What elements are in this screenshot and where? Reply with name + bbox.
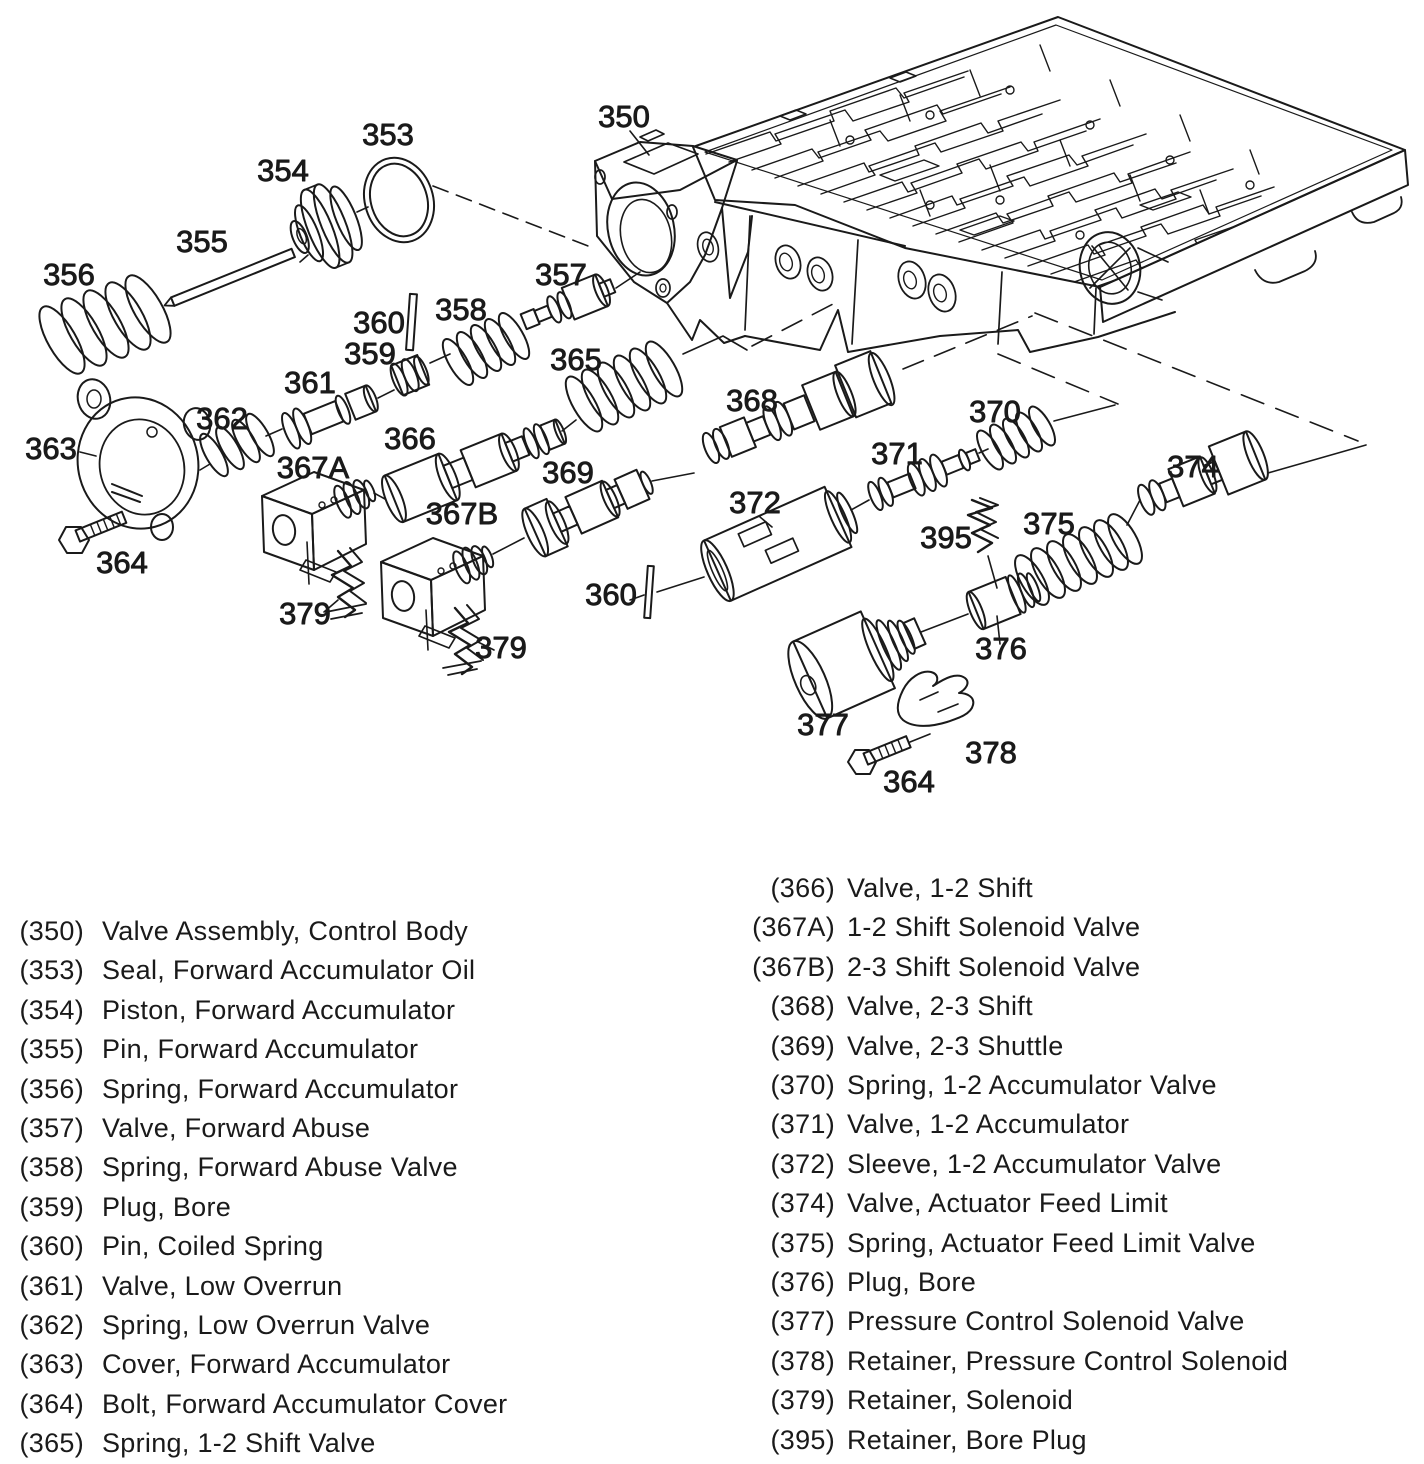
part-name: Valve Assembly, Control Body — [102, 912, 468, 951]
part-name: Valve, Low Overrun — [102, 1267, 343, 1306]
parts-list-row: (368)Valve, 2-3 Shift — [740, 987, 1380, 1026]
callout-359: 359 — [344, 336, 396, 371]
parts-list-row: (355)Pin, Forward Accumulator — [10, 1030, 610, 1069]
part-name: Valve, 1-2 Shift — [847, 869, 1033, 908]
part-354-piston — [278, 176, 372, 279]
part-number: (366) — [740, 869, 835, 908]
callout-365: 365 — [550, 342, 602, 377]
part-name: Valve, Actuator Feed Limit — [847, 1184, 1168, 1223]
channel-maze — [706, 45, 1336, 286]
callout-364b: 364 — [883, 764, 935, 799]
part-number: (362) — [10, 1306, 84, 1345]
parts-list-row: (361)Valve, Low Overrun — [10, 1267, 610, 1306]
callout-360b: 360 — [585, 577, 637, 612]
part-name: Pin, Coiled Spring — [102, 1227, 324, 1266]
callout-375: 375 — [1023, 506, 1075, 541]
part-name: Pressure Control Solenoid Valve — [847, 1302, 1245, 1341]
part-name: Retainer, Pressure Control Solenoid — [847, 1342, 1288, 1381]
parts-list-row: (367B)2-3 Shift Solenoid Valve — [740, 948, 1380, 987]
callout-395: 395 — [920, 520, 972, 555]
part-number: (367B) — [740, 948, 835, 987]
parts-list-row: (374)Valve, Actuator Feed Limit — [740, 1184, 1380, 1223]
part-number: (374) — [740, 1184, 835, 1223]
parts-list-row: (367A)1-2 Shift Solenoid Valve — [740, 908, 1380, 947]
part-number: (377) — [740, 1302, 835, 1341]
callout-356: 356 — [43, 257, 95, 292]
parts-list-row: (364)Bolt, Forward Accumulator Cover — [10, 1385, 610, 1424]
part-number: (372) — [740, 1145, 835, 1184]
part-number: (375) — [740, 1224, 835, 1263]
part-name: Spring, 1-2 Shift Valve — [102, 1424, 376, 1463]
part-360-coiled-pin — [644, 566, 654, 618]
callout-370: 370 — [969, 394, 1021, 429]
parts-list-left-column: (350)Valve Assembly, Control Body (353)S… — [10, 912, 610, 1464]
callout-369: 369 — [542, 455, 594, 490]
exploded-parts-figure: 350 353 354 355 356 357 358 360 359 361 … — [0, 0, 1424, 830]
part-name: Plug, Bore — [102, 1188, 231, 1227]
parts-list-right-column: (366)Valve, 1-2 Shift (367A)1-2 Shift So… — [740, 869, 1380, 1460]
part-number: (378) — [740, 1342, 835, 1381]
part-name: Sleeve, 1-2 Accumulator Valve — [847, 1145, 1221, 1184]
callout-371: 371 — [871, 436, 923, 471]
part-name: 2-3 Shift Solenoid Valve — [847, 948, 1140, 987]
callout-361: 361 — [284, 365, 336, 400]
part-395-retainer-clip — [968, 498, 998, 552]
part-363-cover — [63, 376, 214, 543]
part-name: Seal, Forward Accumulator Oil — [102, 951, 475, 990]
part-name: Spring, 1-2 Accumulator Valve — [847, 1066, 1217, 1105]
parts-list-row: (371)Valve, 1-2 Accumulator — [740, 1105, 1380, 1144]
parts-list-row: (366)Valve, 1-2 Shift — [740, 869, 1380, 908]
callout-353: 353 — [362, 117, 414, 152]
parts-list-row: (350)Valve Assembly, Control Body — [10, 912, 610, 951]
part-number: (364) — [10, 1385, 84, 1424]
parts-list-row: (370)Spring, 1-2 Accumulator Valve — [740, 1066, 1380, 1105]
callout-367B: 367B — [426, 496, 498, 531]
part-number: (359) — [10, 1188, 84, 1227]
bore-boss — [1073, 227, 1168, 310]
callout-366: 366 — [384, 421, 436, 456]
part-name: Spring, Forward Abuse Valve — [102, 1148, 458, 1187]
parts-list-row: (365)Spring, 1-2 Shift Valve — [10, 1424, 610, 1463]
part-number: (358) — [10, 1148, 84, 1187]
parts-list-row: (379)Retainer, Solenoid — [740, 1381, 1380, 1420]
part-number: (395) — [740, 1421, 835, 1460]
part-name: Valve, 1-2 Accumulator — [847, 1105, 1129, 1144]
part-number: (361) — [10, 1267, 84, 1306]
callout-363: 363 — [25, 431, 77, 466]
callout-368: 368 — [726, 383, 778, 418]
part-name: Retainer, Solenoid — [847, 1381, 1073, 1420]
part-name: Retainer, Bore Plug — [847, 1421, 1087, 1460]
parts-list-row: (360)Pin, Coiled Spring — [10, 1227, 610, 1266]
callout-362: 362 — [196, 401, 248, 436]
part-name: 1-2 Shift Solenoid Valve — [847, 908, 1140, 947]
parts-list-row: (375)Spring, Actuator Feed Limit Valve — [740, 1224, 1380, 1263]
part-353-oring-seal — [353, 149, 444, 252]
part-368-valve — [694, 348, 899, 476]
part-name: Plug, Bore — [847, 1263, 976, 1302]
part-number: (357) — [10, 1109, 84, 1148]
callout-358: 358 — [435, 292, 487, 327]
part-number: (354) — [10, 991, 84, 1030]
part-number: (363) — [10, 1345, 84, 1384]
part-number: (360) — [10, 1227, 84, 1266]
parts-list-row: (395)Retainer, Bore Plug — [740, 1421, 1380, 1460]
part-name: Piston, Forward Accumulator — [102, 991, 455, 1030]
part-number: (371) — [740, 1105, 835, 1144]
callout-labels: 350 353 354 355 356 357 358 360 359 361 … — [25, 99, 1219, 799]
parts-list-row: (362)Spring, Low Overrun Valve — [10, 1306, 610, 1345]
parts-list-row: (359)Plug, Bore — [10, 1188, 610, 1227]
callout-377: 377 — [797, 707, 849, 742]
parts-list-row: (363)Cover, Forward Accumulator — [10, 1345, 610, 1384]
part-number: (369) — [740, 1027, 835, 1066]
parts-list-row: (354)Piston, Forward Accumulator — [10, 991, 610, 1030]
callout-350: 350 — [598, 99, 650, 134]
part-number: (353) — [10, 951, 84, 990]
part-378-retainer — [898, 672, 974, 726]
part-number: (376) — [740, 1263, 835, 1302]
callout-379a: 379 — [279, 596, 331, 631]
part-number: (379) — [740, 1381, 835, 1420]
part-number: (355) — [10, 1030, 84, 1069]
callout-354: 354 — [257, 153, 309, 188]
scanned-manual-page: 350 353 354 355 356 357 358 360 359 361 … — [0, 0, 1424, 1462]
parts-list-row: (372)Sleeve, 1-2 Accumulator Valve — [740, 1145, 1380, 1184]
callout-374: 374 — [1167, 449, 1219, 484]
parts-list-row: (357)Valve, Forward Abuse — [10, 1109, 610, 1148]
part-name: Spring, Actuator Feed Limit Valve — [847, 1224, 1256, 1263]
callout-367A: 367A — [277, 450, 350, 485]
callout-372: 372 — [729, 485, 781, 520]
callout-379b: 379 — [475, 630, 527, 665]
parts-list-row: (376)Plug, Bore — [740, 1263, 1380, 1302]
valve-body-350 — [595, 17, 1408, 352]
callout-360: 360 — [353, 305, 405, 340]
part-number: (367A) — [740, 908, 835, 947]
part-name: Spring, Low Overrun Valve — [102, 1306, 430, 1345]
parts-list-row: (377)Pressure Control Solenoid Valve — [740, 1302, 1380, 1341]
part-367A-solenoid — [262, 472, 380, 584]
parts-list-row: (369)Valve, 2-3 Shuttle — [740, 1027, 1380, 1066]
part-name: Cover, Forward Accumulator — [102, 1345, 450, 1384]
part-number: (365) — [10, 1424, 84, 1463]
part-379-retainer-clip — [326, 548, 366, 619]
parts-list-row: (356)Spring, Forward Accumulator — [10, 1070, 610, 1109]
part-name: Valve, 2-3 Shuttle — [847, 1027, 1064, 1066]
callout-378: 378 — [965, 735, 1017, 770]
part-name: Valve, Forward Abuse — [102, 1109, 370, 1148]
callout-376: 376 — [975, 631, 1027, 666]
part-number: (370) — [740, 1066, 835, 1105]
part-name: Valve, 2-3 Shift — [847, 987, 1033, 1026]
part-377-pressure-solenoid — [779, 593, 936, 725]
callout-355: 355 — [176, 224, 228, 259]
part-360-coiled-pin — [406, 294, 417, 350]
callout-357: 357 — [535, 257, 587, 292]
parts-list-row: (378)Retainer, Pressure Control Solenoid — [740, 1342, 1380, 1381]
part-name: Pin, Forward Accumulator — [102, 1030, 418, 1069]
part-name: Bolt, Forward Accumulator Cover — [102, 1385, 507, 1424]
part-name: Spring, Forward Accumulator — [102, 1070, 458, 1109]
part-number: (356) — [10, 1070, 84, 1109]
callout-364: 364 — [96, 545, 148, 580]
parts-list-row: (353)Seal, Forward Accumulator Oil — [10, 951, 610, 990]
part-number: (368) — [740, 987, 835, 1026]
parts-list-row: (358)Spring, Forward Abuse Valve — [10, 1148, 610, 1187]
part-number: (350) — [10, 912, 84, 951]
